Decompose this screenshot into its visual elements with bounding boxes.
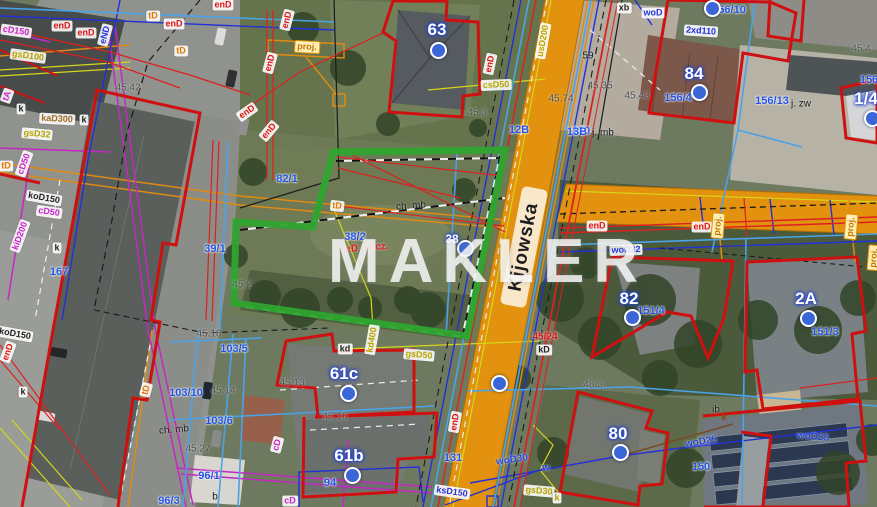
map-label: b	[212, 492, 218, 503]
map-label: 45.2	[232, 280, 251, 291]
map-label: enD	[163, 19, 184, 30]
map-label: 39/1	[204, 243, 225, 255]
map-label: k	[18, 387, 27, 398]
map-label: proj.	[710, 213, 725, 240]
map-label: 12B	[509, 124, 529, 136]
map-label: 156/13	[755, 95, 789, 107]
map-label: 59	[582, 51, 593, 62]
map-label: 45.74	[548, 94, 573, 105]
map-label: j. zw	[791, 99, 811, 110]
map-label: k	[16, 104, 25, 115]
map-label: k	[721, 413, 727, 424]
address-point-dot[interactable]	[800, 310, 817, 327]
map-label: 45.43	[624, 91, 649, 102]
map-label: 96/1	[198, 470, 219, 482]
address-point-dot[interactable]	[864, 110, 877, 127]
map-label: 45.4	[851, 44, 870, 55]
house-number-63[interactable]: 63	[428, 20, 447, 40]
map-label: tD	[330, 200, 345, 212]
map-label: 45.13	[279, 378, 304, 389]
map-label: tD	[146, 11, 160, 22]
watermark: MAKLER	[328, 226, 647, 297]
map-label: 45.14	[210, 386, 235, 397]
map-label: 156/4	[664, 92, 692, 104]
map-label: 151/4	[637, 305, 665, 317]
map-label: ib	[712, 405, 720, 416]
house-number-61b[interactable]: 61b	[334, 446, 363, 466]
map-label: 45.35	[587, 81, 612, 92]
map-label: 103/5	[220, 343, 248, 355]
map-label: 48.3	[583, 380, 602, 391]
house-number-61c[interactable]: 61c	[330, 364, 358, 384]
map-label: proj.	[866, 245, 877, 272]
map-label: 96/3	[158, 495, 179, 507]
map-label: 156	[860, 74, 877, 86]
map-label: 151/3	[811, 326, 839, 338]
address-point-dot[interactable]	[612, 444, 629, 461]
house-number-1-4[interactable]: 1/4	[854, 89, 877, 109]
map-label: k	[552, 493, 561, 504]
map-label: tD	[0, 161, 13, 172]
address-point-dot[interactable]	[704, 0, 721, 17]
map-label: w	[542, 463, 550, 474]
map-label: kd	[338, 344, 353, 355]
map-label: enD	[212, 0, 233, 11]
map-label: 45.16	[322, 412, 347, 423]
map-label: woD	[642, 8, 665, 19]
map-label: 150	[692, 461, 710, 473]
map-label: 131	[444, 452, 462, 464]
map-label: enD	[75, 28, 96, 39]
map-label: proj.	[843, 214, 858, 241]
address-point-dot[interactable]	[344, 467, 361, 484]
house-number-2A[interactable]: 2A	[795, 289, 817, 309]
map-viewport[interactable]: Kijowska 156/10156/4156/13j. zw151/4151/…	[0, 0, 877, 507]
map-label: kD	[536, 345, 552, 356]
map-label: cD	[282, 496, 298, 507]
map-label: kaD300	[39, 113, 75, 126]
map-label: 82/1	[276, 173, 297, 185]
house-number-80[interactable]: 80	[609, 424, 628, 444]
map-label: 167	[50, 266, 68, 278]
address-point-dot[interactable]	[691, 84, 708, 101]
address-point-dot[interactable]	[624, 309, 641, 326]
map-label: k	[52, 243, 61, 254]
map-label: 13B	[567, 126, 587, 138]
map-label: 45.3	[467, 108, 486, 119]
map-label: 45/24	[532, 332, 557, 343]
map-label: k	[79, 115, 88, 126]
map-label: 94	[324, 477, 336, 489]
map-label: csD50	[481, 79, 512, 91]
map-label: 45.42	[115, 83, 140, 94]
map-label: proj.	[294, 40, 320, 54]
map-label: 45.27	[185, 444, 210, 455]
address-point-dot[interactable]	[430, 42, 447, 59]
address-point-dot[interactable]	[340, 385, 357, 402]
map-label: enD	[51, 21, 72, 32]
map-label: tD	[174, 46, 188, 57]
map-label: 103/6	[205, 415, 233, 427]
map-label: ch. mb	[396, 199, 427, 212]
map-label: 103/10	[169, 387, 203, 399]
house-number-84[interactable]: 84	[685, 64, 704, 84]
map-label: xb	[617, 3, 632, 14]
address-point-dot[interactable]	[491, 375, 508, 392]
map-label: enD	[691, 222, 712, 233]
map-label: 2xd110	[684, 24, 719, 37]
map-label: j. mb	[592, 128, 614, 139]
map-label: 45.18	[196, 329, 221, 340]
